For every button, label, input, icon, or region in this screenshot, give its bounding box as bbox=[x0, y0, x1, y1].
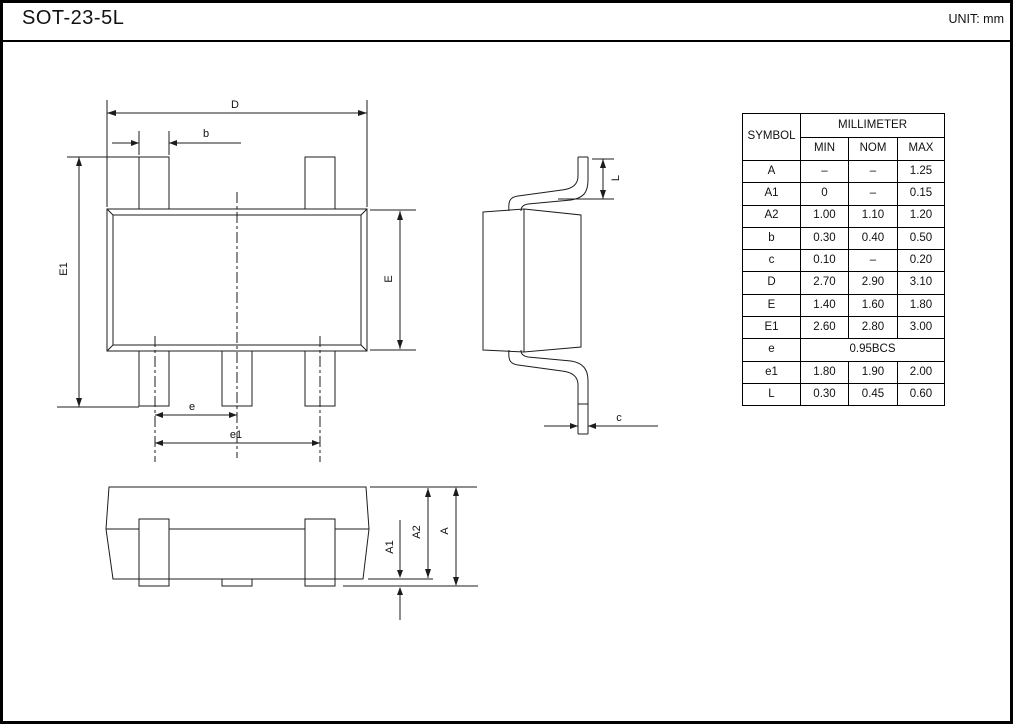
table-row: b 0.30 0.40 0.50 bbox=[743, 227, 945, 249]
label-e: e bbox=[189, 401, 195, 413]
gull-wing-lead-top bbox=[509, 157, 588, 211]
symbol-header: SYMBOL bbox=[743, 114, 801, 161]
dimension-b: b bbox=[112, 128, 241, 155]
side-view: L c bbox=[483, 157, 658, 434]
dimension-D: D bbox=[107, 99, 367, 207]
max-header: MAX bbox=[898, 138, 945, 161]
dimension-E: E bbox=[370, 210, 416, 350]
table-header-row: SYMBOL MILLIMETER bbox=[743, 114, 945, 138]
cell-nom: 1.90 bbox=[849, 361, 898, 383]
cell-nom: 2.90 bbox=[849, 272, 898, 294]
cell-max: 3.10 bbox=[898, 272, 945, 294]
table-row: c 0.10 – 0.20 bbox=[743, 250, 945, 272]
center-lines bbox=[155, 192, 320, 462]
cell-min: 0.30 bbox=[801, 227, 849, 249]
cell-nom: – bbox=[849, 183, 898, 205]
cell-symbol: E1 bbox=[743, 317, 801, 339]
cell-nom: 2.80 bbox=[849, 317, 898, 339]
table-row: e 0.95BCS bbox=[743, 339, 945, 361]
cell-nom: 0.40 bbox=[849, 227, 898, 249]
cell-span-value: 0.95BCS bbox=[801, 339, 945, 361]
table-row: L 0.30 0.45 0.60 bbox=[743, 383, 945, 405]
dimension-table: SYMBOL MILLIMETER MIN NOM MAX A – – 1.25… bbox=[742, 113, 945, 406]
label-b: b bbox=[203, 128, 209, 140]
front-view: A1 A2 A bbox=[106, 487, 478, 620]
table-row: A – – 1.25 bbox=[743, 161, 945, 183]
cell-nom: 0.45 bbox=[849, 383, 898, 405]
dimension-A: A bbox=[439, 487, 459, 586]
label-e1: e1 bbox=[230, 429, 242, 441]
dimension-E1: E1 bbox=[57, 157, 139, 407]
label-E1: E1 bbox=[58, 262, 70, 275]
table-row: E1 2.60 2.80 3.00 bbox=[743, 317, 945, 339]
cell-min: 1.80 bbox=[801, 361, 849, 383]
cell-max: 1.80 bbox=[898, 294, 945, 316]
cell-min: 0.10 bbox=[801, 250, 849, 272]
cell-max: 2.00 bbox=[898, 361, 945, 383]
dimension-c: c bbox=[544, 412, 658, 429]
table-row: A1 0 – 0.15 bbox=[743, 183, 945, 205]
cell-max: 1.20 bbox=[898, 205, 945, 227]
dimension-A2: A2 bbox=[411, 488, 431, 578]
cell-nom: 1.60 bbox=[849, 294, 898, 316]
gull-wing-lead-bottom bbox=[509, 350, 588, 434]
cell-nom: – bbox=[849, 250, 898, 272]
label-L: L bbox=[610, 175, 622, 181]
cell-min: 2.60 bbox=[801, 317, 849, 339]
label-A2: A2 bbox=[411, 525, 423, 538]
label-A1: A1 bbox=[384, 540, 396, 553]
cell-max: 0.50 bbox=[898, 227, 945, 249]
cell-min: – bbox=[801, 161, 849, 183]
label-A: A bbox=[439, 527, 451, 535]
cell-max: 3.00 bbox=[898, 317, 945, 339]
cell-min: 1.00 bbox=[801, 205, 849, 227]
dimension-e: e bbox=[155, 401, 237, 418]
table-row: E 1.40 1.60 1.80 bbox=[743, 294, 945, 316]
cell-min: 0 bbox=[801, 183, 849, 205]
cell-nom: – bbox=[849, 161, 898, 183]
side-body bbox=[483, 209, 581, 352]
cell-symbol: E bbox=[743, 294, 801, 316]
cell-min: 1.40 bbox=[801, 294, 849, 316]
cell-min: 2.70 bbox=[801, 272, 849, 294]
cell-symbol: A2 bbox=[743, 205, 801, 227]
table-row: e1 1.80 1.90 2.00 bbox=[743, 361, 945, 383]
cell-symbol: A bbox=[743, 161, 801, 183]
cell-symbol: e bbox=[743, 339, 801, 361]
label-D: D bbox=[231, 99, 239, 111]
cell-symbol: e1 bbox=[743, 361, 801, 383]
top-view: D b E1 bbox=[57, 99, 416, 462]
cell-symbol: c bbox=[743, 250, 801, 272]
cell-max: 1.25 bbox=[898, 161, 945, 183]
label-c: c bbox=[616, 412, 622, 424]
cell-nom: 1.10 bbox=[849, 205, 898, 227]
cell-symbol: D bbox=[743, 272, 801, 294]
cell-max: 0.15 bbox=[898, 183, 945, 205]
min-header: MIN bbox=[801, 138, 849, 161]
table-row: D 2.70 2.90 3.10 bbox=[743, 272, 945, 294]
millimeter-header: MILLIMETER bbox=[801, 114, 945, 138]
cell-max: 0.60 bbox=[898, 383, 945, 405]
table-row: A2 1.00 1.10 1.20 bbox=[743, 205, 945, 227]
cell-symbol: b bbox=[743, 227, 801, 249]
cell-symbol: A1 bbox=[743, 183, 801, 205]
label-E: E bbox=[383, 275, 395, 282]
dimension-A1: A1 bbox=[384, 520, 403, 620]
cell-symbol: L bbox=[743, 383, 801, 405]
dimension-L: L bbox=[558, 159, 622, 199]
dimension-e1: e1 bbox=[155, 429, 320, 446]
datasheet-page: SOT-23-5L UNIT: mm bbox=[0, 0, 1013, 724]
cell-max: 0.20 bbox=[898, 250, 945, 272]
nom-header: NOM bbox=[849, 138, 898, 161]
cell-min: 0.30 bbox=[801, 383, 849, 405]
